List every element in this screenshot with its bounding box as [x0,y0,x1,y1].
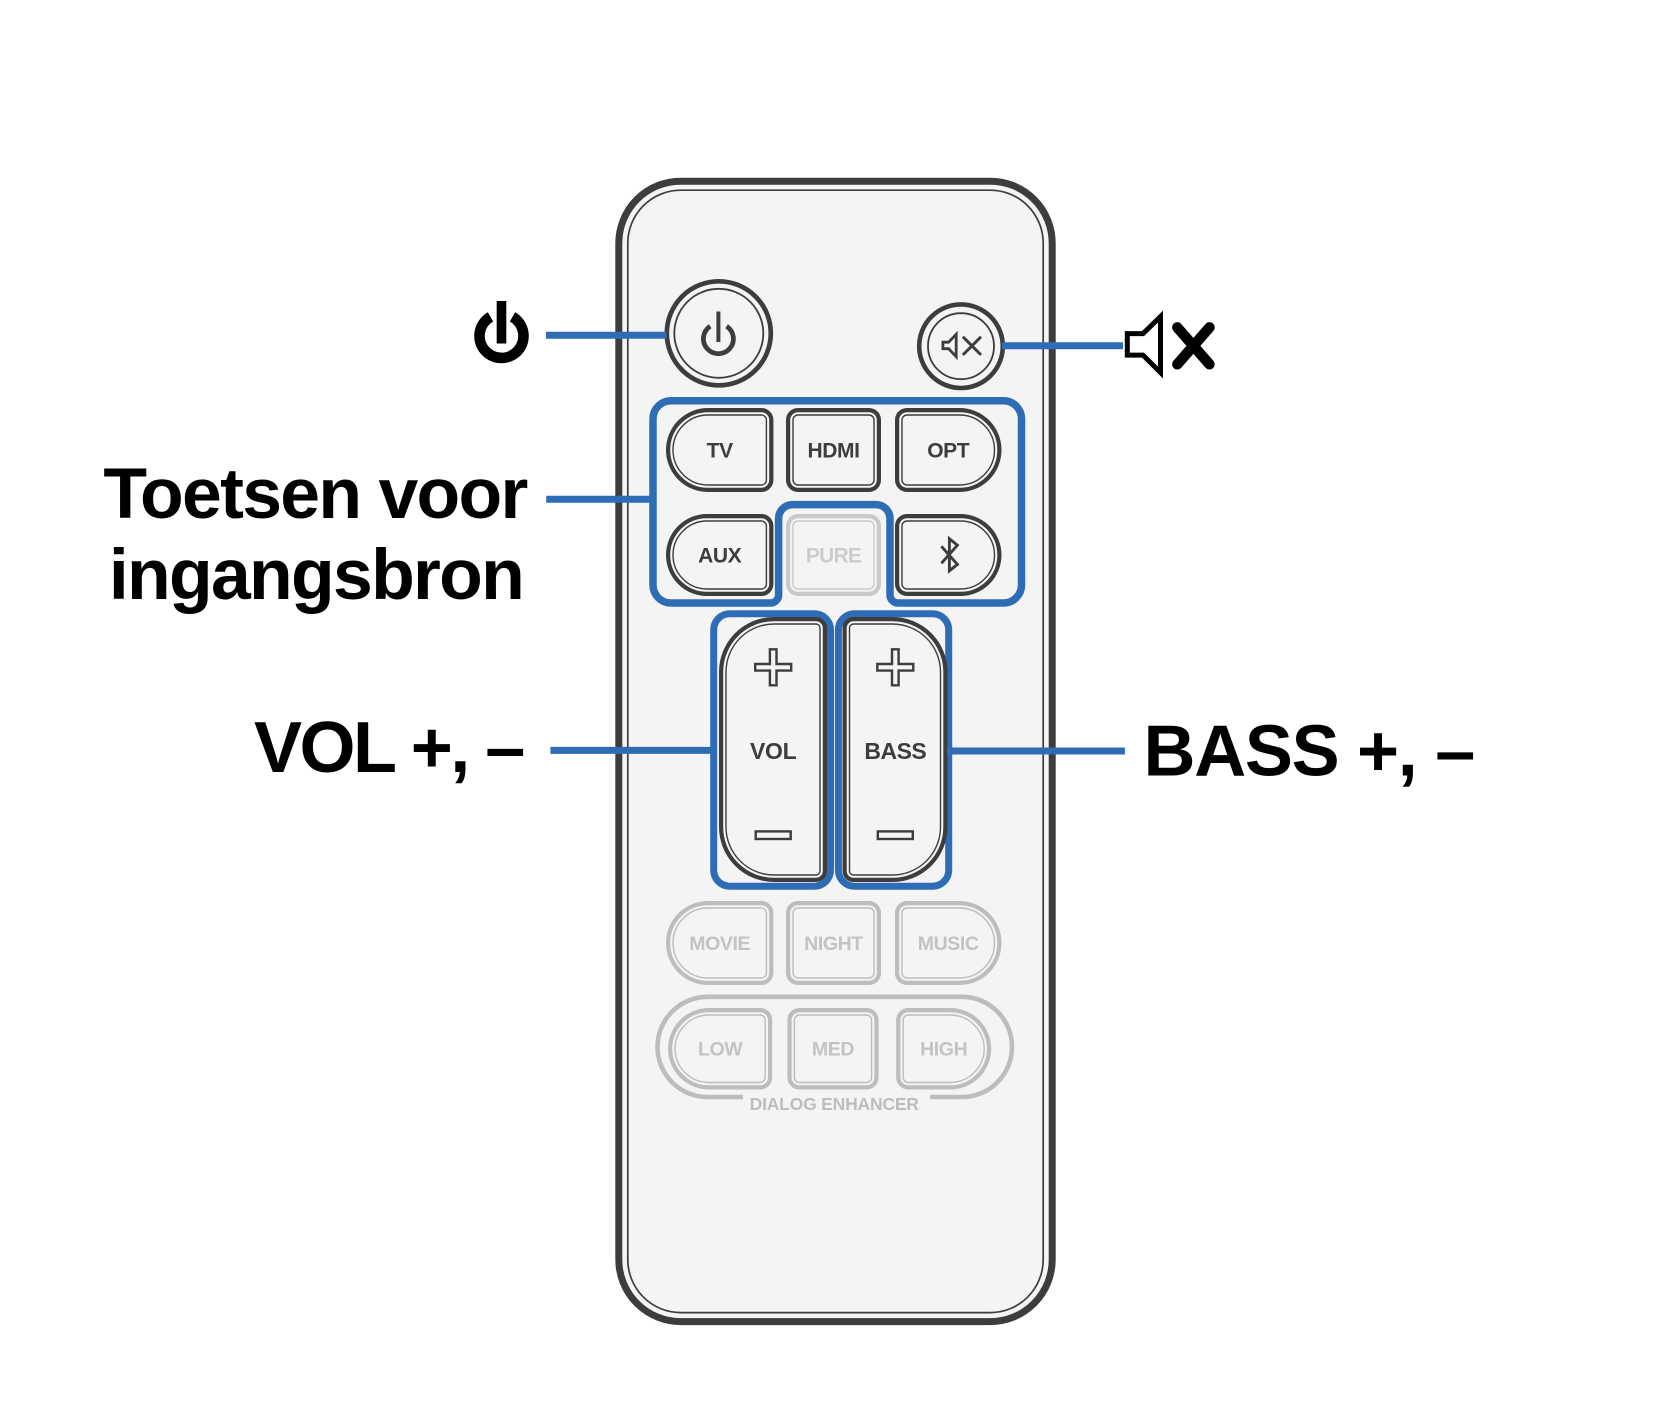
svg-text:AUX: AUX [698,545,742,568]
svg-text:VOL: VOL [750,738,797,764]
svg-text:NIGHT: NIGHT [804,933,863,955]
svg-text:OPT: OPT [927,440,970,463]
svg-text:BASS: BASS [864,738,926,764]
svg-text:DIALOG ENHANCER: DIALOG ENHANCER [750,1094,920,1114]
svg-text:Toetsen voor: Toetsen voor [103,454,527,534]
svg-text:LOW: LOW [698,1039,743,1061]
svg-text:HIGH: HIGH [920,1039,967,1061]
svg-text:PURE: PURE [806,545,862,568]
svg-text:BASS +, –: BASS +, – [1144,712,1474,792]
svg-text:ingangsbron: ingangsbron [109,535,523,615]
svg-text:TV: TV [707,440,733,463]
svg-text:MED: MED [812,1039,854,1061]
svg-text:MUSIC: MUSIC [918,933,979,955]
svg-text:HDMI: HDMI [807,440,859,463]
svg-text:VOL +, –: VOL +, – [254,708,523,788]
svg-text:MOVIE: MOVIE [689,933,750,955]
